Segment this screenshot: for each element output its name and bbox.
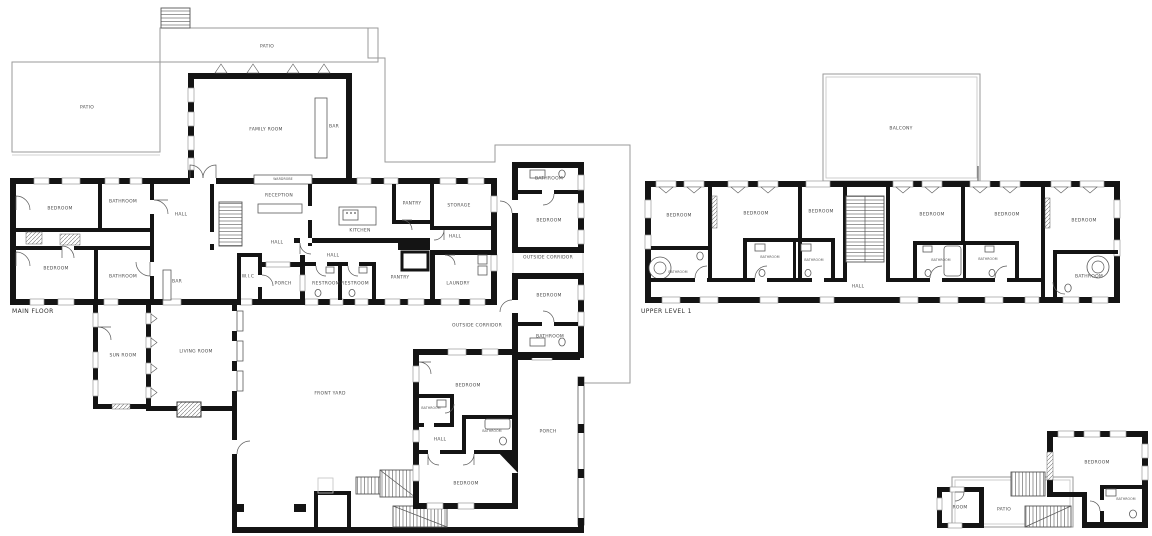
room-label-bathroom-s1: BATHROOM — [421, 406, 440, 410]
sink — [755, 244, 765, 251]
room-label-hall-s: HALL — [327, 254, 339, 259]
room-label-living-room: LIVING ROOM — [179, 350, 212, 355]
room-label-bar-family: BAR — [329, 125, 339, 130]
outbuilding-plan — [937, 431, 1148, 528]
room-label-up-bathroom-6: BATHROOM — [1075, 275, 1103, 280]
room-label-bedroom-g1: BEDROOM — [536, 219, 561, 224]
room-label-bathroom-nw: BATHROOM — [109, 200, 137, 205]
bathtub — [649, 257, 671, 279]
room-label-out-room: ROOM — [952, 506, 967, 511]
sink — [1106, 489, 1116, 496]
room-label-sun-room: SUN ROOM — [109, 354, 136, 359]
room-label-restroom-2: RESTROOM — [341, 282, 369, 287]
plan-title-main-floor: MAIN FLOOR — [12, 308, 54, 315]
sink — [985, 246, 994, 252]
bar-counter-small — [163, 270, 171, 300]
toilet — [349, 289, 355, 296]
closet — [60, 234, 80, 245]
bathtub — [485, 419, 510, 429]
room-label-bathroom-s2: BATHROOM — [482, 429, 501, 433]
room-label-hall-mid: HALL — [271, 241, 283, 246]
room-label-bedroom-s2: BEDROOM — [453, 482, 478, 487]
room-label-up-bedroom-1: BEDROOM — [666, 214, 691, 219]
room-label-up-hall: HALL — [852, 285, 864, 290]
room-label-family-room: FAMILY ROOM — [249, 128, 282, 133]
room-label-bedroom-sw: BEDROOM — [43, 267, 68, 272]
room-label-up-bedroom-6: BEDROOM — [1071, 219, 1096, 224]
toilet — [697, 252, 703, 260]
room-label-bedroom-g2: BEDROOM — [536, 294, 561, 299]
sink — [923, 246, 932, 252]
room-label-up-bedroom-4: BEDROOM — [919, 213, 944, 218]
room-label-wic: W.I.C — [242, 275, 255, 280]
stairs-yard-1 — [356, 477, 380, 494]
toilet — [989, 269, 995, 276]
room-label-bathroom-sw: BATHROOM — [109, 275, 137, 280]
room-label-patio-top: PATIO — [260, 45, 274, 50]
room-label-up-bedroom-2: BEDROOM — [743, 212, 768, 217]
room-label-up-bedroom-3: BEDROOM — [808, 210, 833, 215]
room-label-pantry-s: PANTRY — [391, 276, 410, 281]
room-label-up-bathroom-5: BATHROOM — [978, 257, 997, 261]
room-label-bedroom-s1: BEDROOM — [455, 384, 480, 389]
room-label-bathroom-g1: BATHROOM — [535, 177, 563, 182]
toilet — [805, 269, 811, 276]
room-label-out-patio: PATIO — [997, 508, 1011, 513]
stove — [343, 210, 358, 220]
entry-structure — [316, 493, 349, 529]
room-label-up-bathroom-2: BATHROOM — [760, 255, 779, 259]
room-label-hall-sw: HALL — [434, 438, 446, 443]
dryer — [478, 266, 487, 275]
toilet — [1065, 284, 1071, 292]
plan-title-upper-level: UPPER LEVEL 1 — [641, 308, 692, 315]
closet — [26, 232, 42, 244]
room-label-reception: RECEPTION — [265, 194, 293, 199]
room-label-bar-small: BAR — [172, 280, 182, 285]
reception-desk — [258, 204, 302, 213]
fireplace — [177, 402, 201, 417]
room-label-outside-corridor-e: OUTSIDE CORRIDOR — [523, 256, 573, 261]
room-label-storage: STORAGE — [447, 204, 470, 209]
room-label-wardrobe: WARDROBE — [273, 177, 293, 181]
room-label-up-bathroom-3: BATHROOM — [804, 258, 823, 262]
toilet — [759, 269, 765, 276]
room-label-out-bedroom: BEDROOM — [1084, 461, 1109, 466]
room-label-porch-nw: PORCH — [275, 282, 292, 287]
bar-counter — [315, 98, 327, 158]
closet — [712, 196, 717, 228]
room-label-patio-left: PATIO — [80, 106, 94, 111]
room-label-out-bathroom: BATHROOM — [1116, 497, 1135, 501]
room-label-up-bathroom-1: BATHROOM — [668, 270, 687, 274]
room-label-laundry: LAUNDRY — [446, 282, 469, 287]
room-label-porch-e: PORCH — [540, 430, 557, 435]
room-label-outside-corridor-s: OUTSIDE CORRIDOR — [452, 324, 502, 329]
toilet — [500, 437, 507, 445]
sink — [326, 267, 334, 273]
room-label-balcony: BALCONY — [889, 127, 912, 132]
closet — [1045, 198, 1050, 228]
washer — [478, 255, 487, 264]
room-label-hall-nw: HALL — [175, 213, 187, 218]
room-label-restroom-1: RESTROOM — [312, 282, 340, 287]
sink — [359, 267, 367, 273]
stairs-entry — [219, 202, 242, 246]
room-label-up-bedroom-5: BEDROOM — [994, 213, 1019, 218]
room-label-kitchen: KITCHEN — [349, 229, 370, 234]
stairs-top — [161, 8, 190, 28]
room-label-bathroom-g2: BATHROOM — [536, 335, 564, 340]
sink — [801, 244, 811, 251]
toilet — [1130, 510, 1137, 518]
room-label-bedroom-nw: BEDROOM — [47, 207, 72, 212]
outbuilding-stairs-1 — [1011, 472, 1045, 496]
room-label-pantry-n: PANTRY — [403, 202, 422, 207]
floorplan-canvas: MAIN FLOOR PATIO PATIO FAMILY ROOM BAR B… — [0, 0, 1152, 536]
room-label-front-yard: FRONT YARD — [314, 392, 345, 397]
floorplan-drawing — [0, 0, 1152, 536]
main-floor-plan — [10, 8, 630, 533]
vestibule — [402, 252, 428, 270]
toilet — [315, 289, 321, 296]
upper-level-plan — [645, 74, 1120, 303]
room-label-hall-ne: HALL — [449, 235, 461, 240]
room-label-up-bathroom-4: BATHROOM — [931, 258, 950, 262]
